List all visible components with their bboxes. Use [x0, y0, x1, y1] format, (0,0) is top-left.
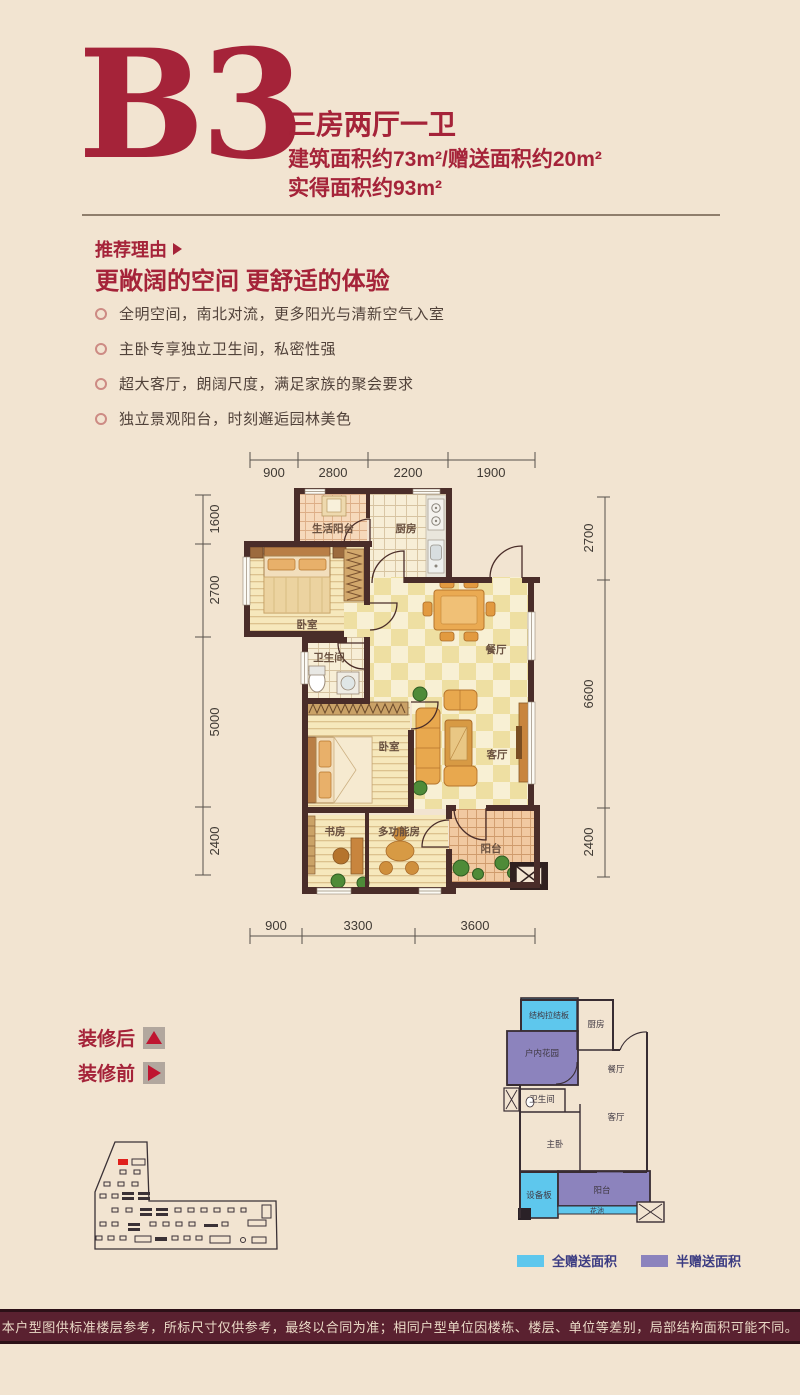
dim-label: 2700 — [207, 576, 222, 605]
mini-label-dining: 餐厅 — [607, 1064, 625, 1074]
mini-floor-plan: 结构拉结板 厨房 户内花园 餐厅 卫生间 客厅 主卧 设备板 阳台 花池 — [495, 990, 675, 1235]
half-gift-swatch — [641, 1255, 668, 1267]
dim-label: 2700 — [581, 524, 596, 553]
list-item: 超大客厅，朗阔尺度，满足家族的聚会要求 — [95, 373, 445, 394]
mini-label-balcony: 阳台 — [593, 1185, 610, 1195]
dim-label: 2400 — [207, 827, 222, 856]
room-label-service-balcony: 生活阳台 — [312, 522, 354, 535]
half-gift-area-garden — [507, 1031, 578, 1085]
disclaimer-text: 本户型图供标准楼层参考，所标尺寸仅供参考，最终以合同为准；相同户型单位因楼栋、楼… — [2, 1317, 799, 1336]
highlighted-building — [118, 1159, 128, 1165]
plan-layout-title: 三房两厅一卫 — [288, 103, 456, 143]
room-label-dining: 餐厅 — [485, 643, 507, 656]
bullet-ring-icon — [95, 378, 107, 390]
room-label-bathroom: 卫生间 — [313, 651, 345, 664]
bullet-text: 主卧专享独立卫生间，私密性强 — [119, 338, 336, 359]
net-area-line: 实得面积约93m² — [288, 172, 442, 202]
decorated-before-text: 装修前 — [78, 1059, 135, 1086]
dim-label: 3300 — [344, 918, 373, 933]
room-label-multi-room: 多功能房 — [378, 825, 420, 838]
full-gift-label: 全赠送面积 — [552, 1251, 617, 1270]
mini-label-kitchen: 厨房 — [587, 1019, 604, 1029]
full-gift-swatch — [517, 1255, 544, 1267]
dim-label: 900 — [263, 465, 285, 480]
dim-label: 2400 — [581, 828, 596, 857]
dim-label: 5000 — [207, 708, 222, 737]
decorated-before-label: 装修前 — [78, 1059, 165, 1086]
mini-label-equip: 设备板 — [526, 1190, 552, 1200]
bullet-text: 超大客厅，朗阔尺度，满足家族的聚会要求 — [119, 373, 414, 394]
legend-item-half-gift: 半赠送面积 — [641, 1251, 741, 1270]
mini-label-tie-panel: 结构拉结板 — [529, 1010, 569, 1020]
site-building-bars — [122, 1192, 218, 1241]
header-divider — [82, 214, 720, 216]
dim-label: 3600 — [461, 918, 490, 933]
half-gift-label: 半赠送面积 — [676, 1251, 741, 1270]
dim-label: 1900 — [477, 465, 506, 480]
mini-label-flowerbed: 花池 — [590, 1206, 604, 1215]
room-label-balcony: 阳台 — [481, 842, 502, 855]
bullet-text: 全明空间，南北对流，更多阳光与清新空气入室 — [119, 303, 445, 324]
triangle-up-badge — [143, 1027, 165, 1049]
list-item: 主卧专享独立卫生间，私密性强 — [95, 338, 445, 359]
decorated-after-label: 装修后 — [78, 1024, 165, 1051]
room-label-bedroom2: 卧室 — [379, 740, 400, 753]
recommend-lead: 推荐理由 — [95, 236, 182, 262]
bullet-text: 独立景观阳台，时刻邂逅园林美色 — [119, 408, 352, 429]
room-label-living: 客厅 — [486, 748, 508, 761]
disclaimer-bar: 本户型图供标准楼层参考，所标尺寸仅供参考，最终以合同为准；相同户型单位因楼栋、楼… — [0, 1309, 800, 1344]
recommend-lead-label: 推荐理由 — [95, 236, 167, 262]
dim-label: 900 — [265, 918, 287, 933]
recommend-title: 更敞阔的空间 更舒适的体验 — [95, 261, 390, 296]
room-label-bedroom1: 卧室 — [297, 618, 318, 631]
selling-points-list: 全明空间，南北对流，更多阳光与清新空气入室 主卧专享独立卫生间，私密性强 超大客… — [95, 303, 445, 443]
built-area-line: 建筑面积约73m²/赠送面积约20m² — [288, 143, 602, 173]
bullet-ring-icon — [95, 413, 107, 425]
room-label-kitchen: 厨房 — [396, 522, 417, 535]
room-label-study: 书房 — [325, 825, 346, 838]
site-plan — [70, 1135, 300, 1260]
bullet-ring-icon — [95, 308, 107, 320]
mini-label-master: 主卧 — [546, 1139, 564, 1149]
dim-label: 6600 — [581, 680, 596, 709]
mini-label-living: 客厅 — [607, 1112, 625, 1122]
floor-plan: 900 2800 2200 1900 1600 2700 5000 2400 2… — [190, 445, 610, 960]
triangle-right-icon — [148, 1065, 161, 1081]
gift-area-legend: 全赠送面积 半赠送面积 — [517, 1251, 741, 1270]
triangle-up-icon — [146, 1031, 162, 1044]
dim-label: 2200 — [394, 465, 423, 480]
dim-label: 1600 — [207, 505, 222, 534]
dim-label: 2800 — [319, 465, 348, 480]
mini-label-bathroom: 卫生间 — [529, 1094, 555, 1104]
decorated-after-text: 装修后 — [78, 1024, 135, 1051]
arrow-right-icon — [173, 243, 182, 255]
bullet-ring-icon — [95, 343, 107, 355]
list-item: 独立景观阳台，时刻邂逅园林美色 — [95, 408, 445, 429]
mini-label-garden: 户内花园 — [525, 1048, 559, 1058]
list-item: 全明空间，南北对流，更多阳光与清新空气入室 — [95, 303, 445, 324]
site-buildings — [96, 1170, 271, 1243]
triangle-right-badge — [143, 1062, 165, 1084]
plan-code: B3 — [78, 30, 301, 180]
legend-item-full-gift: 全赠送面积 — [517, 1251, 617, 1270]
